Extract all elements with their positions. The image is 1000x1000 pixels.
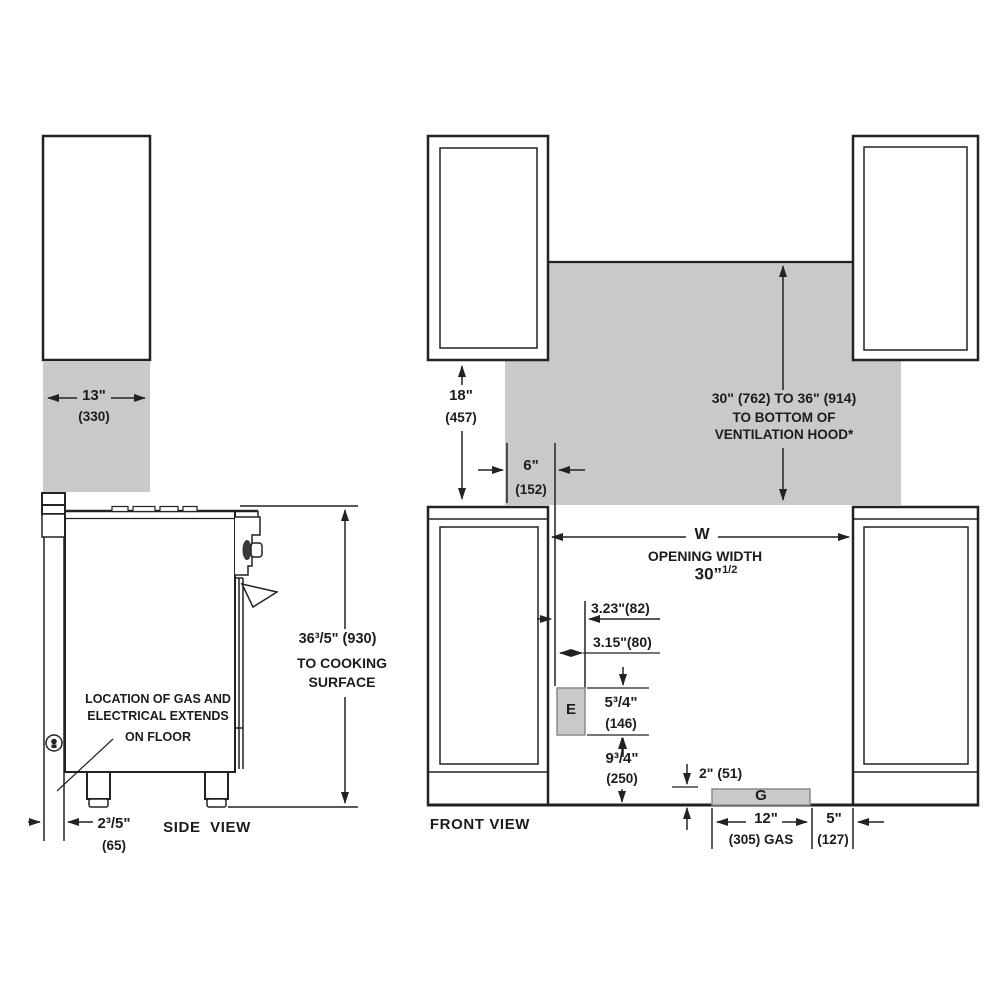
electrical-floor-offset-in: 9³/4" — [598, 751, 646, 768]
opening-width-value-sup: 1/2 — [722, 564, 737, 576]
electrical-offset-top: 3.23"(82) — [591, 601, 650, 617]
counter-height-mm: (457) — [435, 410, 487, 425]
cooktop-height-line3: SURFACE — [292, 675, 392, 691]
upper-cabinet-left — [428, 136, 548, 360]
cooktop-height-value: 36³/5" (930) — [280, 631, 395, 647]
hood-clearance-line3: VENTILATION HOOD* — [704, 427, 864, 442]
gas-note-line1: LOCATION OF GAS AND — [85, 692, 231, 706]
gas-width-in: 12" — [741, 811, 791, 828]
opening-width-symbol: W — [687, 526, 717, 544]
electrical-offset-bottom: 3.15"(80) — [593, 635, 652, 651]
gas-note-line2: ELECTRICAL EXTENDS — [85, 709, 231, 723]
opening-width-value: 30”1/2 — [666, 564, 766, 584]
hood-clearance-shaded-area — [505, 262, 901, 505]
gas-offset-in: 5" — [818, 811, 850, 828]
side-tall-cabinet — [43, 136, 150, 360]
opening-width-value-main: 30” — [695, 565, 722, 584]
base-cabinet-right — [853, 507, 978, 805]
electrical-floor-offset-mm: (250) — [598, 771, 646, 786]
side-clearance-mm: (152) — [505, 482, 557, 497]
diagram-linework — [0, 0, 1000, 1000]
counter-height-in: 18" — [438, 388, 484, 405]
electrical-box-label: E — [557, 702, 585, 719]
rear-gap-mm: (65) — [85, 838, 143, 853]
hood-clearance-line1: 30" (762) TO 36" (914) — [684, 391, 884, 407]
cooktop-height-line2: TO COOKING — [292, 656, 392, 672]
range-installation-diagram: 13" (330) 36³/5" (930) TO COOKING SURFAC… — [0, 0, 1000, 1000]
hood-clearance-line2: TO BOTTOM OF — [714, 410, 854, 425]
electrical-box-height-mm: (146) — [597, 716, 645, 731]
gas-width-mm: (305) GAS — [716, 832, 806, 847]
rear-gap-in: 2³/5" — [85, 816, 143, 833]
base-cabinet-left — [428, 507, 548, 805]
door-handle — [242, 584, 277, 607]
side-view-title: SIDE VIEW — [157, 820, 257, 837]
side-chase-shaded-area — [43, 361, 150, 492]
side-cabinet-depth-mm: (330) — [60, 409, 128, 424]
front-view-title: FRONT VIEW — [428, 817, 532, 834]
gas-box-height: 2" (51) — [699, 766, 742, 782]
gas-note-line3: ON FLOOR — [85, 730, 231, 744]
upper-cabinet-right — [853, 136, 978, 360]
gas-offset-mm: (127) — [807, 832, 859, 847]
electrical-box-height-in: 5³/4" — [596, 695, 646, 712]
side-clearance-in: 6" — [511, 458, 551, 475]
control-knob — [243, 540, 252, 560]
side-cabinet-depth-in: 13" — [60, 388, 128, 405]
gas-box-label: G — [712, 788, 810, 804]
opening-width-label: OPENING WIDTH — [630, 549, 780, 565]
